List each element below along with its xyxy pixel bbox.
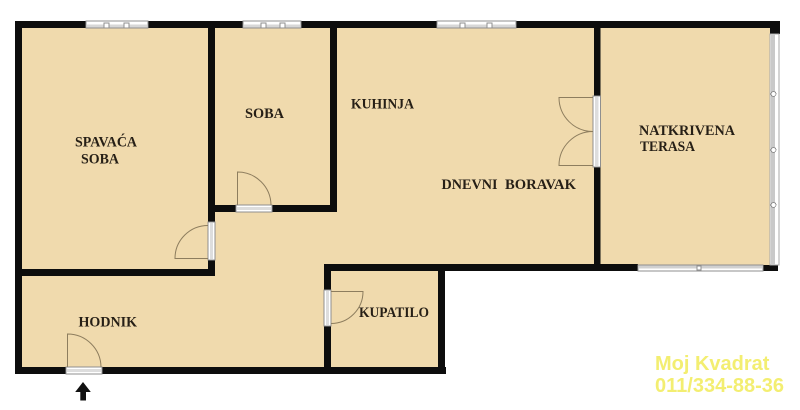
svg-text:011/334-88-36: 011/334-88-36 xyxy=(655,375,784,397)
svg-text:DNEVNI: DNEVNI xyxy=(442,177,498,193)
svg-text:KUPATILO: KUPATILO xyxy=(359,305,429,321)
svg-text:KUHINJA: KUHINJA xyxy=(351,97,414,113)
svg-text:BORAVAK: BORAVAK xyxy=(505,177,576,193)
svg-text:TERASA: TERASA xyxy=(640,139,695,155)
svg-text:SOBA: SOBA xyxy=(245,106,284,122)
svg-text:SPAVAĆA: SPAVAĆA xyxy=(75,134,137,151)
svg-text:SOBA: SOBA xyxy=(81,152,119,168)
svg-text:NATKRIVENA: NATKRIVENA xyxy=(639,123,735,139)
svg-text:HODNIK: HODNIK xyxy=(79,315,138,331)
svg-text:Moj Kvadrat: Moj Kvadrat xyxy=(655,353,770,375)
